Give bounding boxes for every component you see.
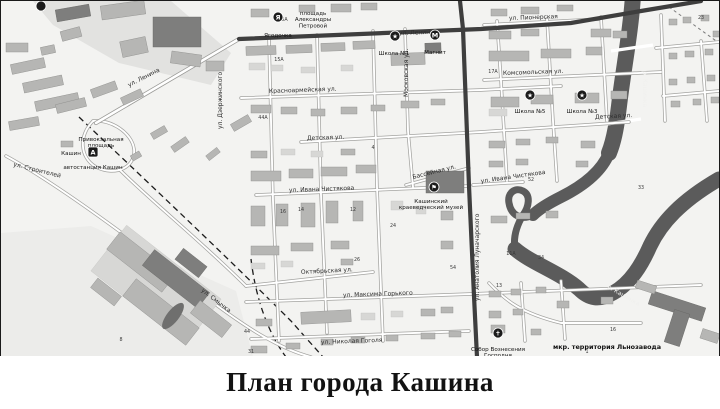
building xyxy=(491,97,519,107)
house-number: 44 xyxy=(244,329,250,335)
building xyxy=(576,161,588,167)
building xyxy=(491,216,507,223)
building xyxy=(516,213,530,219)
building xyxy=(557,5,573,11)
building xyxy=(669,53,677,59)
building xyxy=(251,151,267,158)
map-title: План города Кашина xyxy=(226,367,494,398)
building xyxy=(251,171,281,181)
house-number: 16 xyxy=(280,209,286,215)
building xyxy=(611,91,627,99)
school-1-icon[interactable]: ★ xyxy=(390,31,400,41)
house-number: 14 xyxy=(298,207,304,213)
building xyxy=(664,309,690,346)
building xyxy=(206,147,221,160)
school-5-icon[interactable]: ★ xyxy=(525,90,535,100)
building xyxy=(521,29,539,36)
building xyxy=(321,43,345,52)
river-kashinka-upper xyxy=(609,1,633,153)
building xyxy=(516,139,530,145)
building xyxy=(431,99,445,105)
house-number: 26 xyxy=(354,257,360,263)
place-label: Школа №5 xyxy=(515,109,546,115)
building xyxy=(341,65,353,71)
place-label: краеведческий музей xyxy=(399,204,464,211)
shop-yagodochka-glyph: Я xyxy=(275,13,280,21)
city-map-canvas[interactable]: ул. Ленинаул. Ленинаул. ПионерскаяКрасно… xyxy=(0,0,720,358)
building xyxy=(246,45,276,55)
building xyxy=(341,107,357,114)
house-number: 8 xyxy=(119,337,122,343)
school-5-glyph: ★ xyxy=(527,91,533,99)
house-number: 17А xyxy=(488,69,498,75)
house-number: 44А xyxy=(258,115,268,121)
building xyxy=(356,165,376,173)
river-kashinka-lower xyxy=(515,179,719,298)
building xyxy=(171,136,190,152)
museum-icon[interactable]: ⚑ xyxy=(429,182,439,192)
building xyxy=(249,63,265,70)
building xyxy=(601,297,613,304)
house-number: 11А xyxy=(506,251,516,257)
house-number: 52 xyxy=(528,177,534,183)
school-1-glyph: ★ xyxy=(392,32,398,40)
building xyxy=(61,141,73,147)
building xyxy=(150,125,167,139)
building xyxy=(441,241,453,249)
building xyxy=(230,115,251,132)
building xyxy=(311,151,323,157)
place-label: Петровой xyxy=(299,22,328,29)
building xyxy=(286,343,300,349)
building xyxy=(22,75,63,93)
building xyxy=(271,65,283,71)
building xyxy=(671,101,680,107)
building xyxy=(8,116,39,130)
school-3-glyph: ★ xyxy=(579,91,585,99)
street-label: ул. Дзержинского xyxy=(217,71,224,129)
building xyxy=(669,19,677,25)
bus-station-icon[interactable]: А xyxy=(88,147,98,157)
street-label: ул. Ленина xyxy=(399,29,434,37)
building xyxy=(489,291,501,297)
house-number: 4 xyxy=(371,145,374,151)
building xyxy=(281,107,297,114)
street-label: ул. Анатолия Луначарского xyxy=(474,213,481,301)
screenshot-frame: ул. Ленинаул. Ленинаул. ПионерскаяКрасно… xyxy=(0,0,720,409)
building xyxy=(421,333,435,339)
house-number: 33 xyxy=(638,185,644,191)
shop-magnit-icon[interactable]: М xyxy=(430,30,440,40)
place-label: Кашинский xyxy=(414,198,448,205)
building xyxy=(289,169,313,178)
building xyxy=(361,3,377,10)
building xyxy=(386,335,398,341)
building xyxy=(683,17,691,23)
church-icon[interactable]: ✝ xyxy=(493,328,503,338)
building xyxy=(693,99,701,105)
building xyxy=(153,17,201,47)
house-number: 54 xyxy=(450,265,456,271)
building xyxy=(286,45,312,54)
building xyxy=(301,310,352,325)
river-kashinka-mid xyxy=(533,153,609,215)
map-svg[interactable]: ул. Ленинаул. Ленинаул. ПионерскаяКрасно… xyxy=(1,1,719,357)
building xyxy=(6,43,28,52)
building xyxy=(546,137,558,143)
building xyxy=(531,329,541,335)
building xyxy=(546,211,558,218)
place-label: мкр. территория Льнозавода xyxy=(553,343,661,351)
building xyxy=(711,97,719,103)
building xyxy=(371,105,385,111)
building xyxy=(321,167,347,176)
river-label: р. Кашинка xyxy=(641,71,648,107)
building xyxy=(613,31,627,38)
building xyxy=(353,41,375,50)
building xyxy=(311,109,325,116)
building xyxy=(301,67,315,73)
building xyxy=(256,319,272,326)
building xyxy=(586,47,602,55)
shop-magnit-glyph: М xyxy=(432,31,438,39)
place-label: Ягодочка xyxy=(264,33,292,39)
building xyxy=(281,261,293,267)
house-number: 13 xyxy=(496,283,502,289)
building xyxy=(291,243,313,251)
place-label: Кашин xyxy=(61,151,81,157)
building xyxy=(669,79,677,85)
house-number: 23 xyxy=(698,15,704,21)
building xyxy=(281,149,295,155)
building xyxy=(491,9,507,16)
building xyxy=(361,313,375,320)
building xyxy=(251,105,271,113)
house-number: 1 xyxy=(585,349,588,355)
school-3-icon[interactable]: ★ xyxy=(577,90,587,100)
building xyxy=(511,289,521,295)
building xyxy=(441,307,453,313)
building xyxy=(591,29,611,37)
building xyxy=(521,7,539,14)
building xyxy=(251,246,279,255)
shop-yagodochka-icon[interactable]: Я xyxy=(273,12,283,22)
building xyxy=(326,201,338,223)
building xyxy=(331,4,351,12)
building xyxy=(449,331,461,337)
building xyxy=(489,311,501,318)
building xyxy=(489,161,503,167)
transit-stop-icon[interactable] xyxy=(36,1,46,11)
transit-stop-marker[interactable] xyxy=(36,1,46,11)
place-label: площадь xyxy=(300,11,327,17)
building xyxy=(713,31,719,37)
railway-branch xyxy=(251,259,286,357)
building xyxy=(401,101,419,108)
place-label: Александры xyxy=(295,17,331,23)
building xyxy=(705,49,713,55)
building xyxy=(421,309,435,316)
building xyxy=(536,287,546,293)
house-number: 24 xyxy=(390,223,396,229)
building xyxy=(341,259,353,265)
place-label: автостанция Кашин xyxy=(63,165,123,171)
building xyxy=(331,241,349,249)
building xyxy=(251,9,269,17)
building xyxy=(391,311,403,317)
street-label: ул. Строителей xyxy=(13,161,62,180)
building xyxy=(90,81,118,98)
church-glyph: ✝ xyxy=(495,329,500,337)
building xyxy=(276,204,288,226)
building xyxy=(206,61,224,71)
place-label: Собор Вознесения xyxy=(471,347,525,353)
museum-glyph: ⚑ xyxy=(431,183,437,191)
building xyxy=(513,309,523,315)
building xyxy=(707,75,715,81)
building xyxy=(635,280,656,294)
house-number: 12 xyxy=(350,207,356,213)
house-number: 15А xyxy=(274,57,284,63)
building xyxy=(541,49,571,58)
building xyxy=(489,31,511,39)
house-number: 16 xyxy=(610,327,616,333)
building xyxy=(489,141,505,148)
place-label: Школа №1 xyxy=(379,51,410,57)
building xyxy=(40,45,55,56)
building xyxy=(441,211,453,220)
street-label: ул. Николая Гоголя xyxy=(321,337,383,346)
house-number: 31 xyxy=(248,349,254,355)
building xyxy=(341,149,355,155)
building xyxy=(516,159,528,165)
place-label: Школа №3 xyxy=(567,109,598,115)
building xyxy=(489,109,507,116)
building xyxy=(557,301,569,308)
building xyxy=(489,51,529,61)
building xyxy=(251,206,265,226)
building xyxy=(581,141,595,148)
place-label: Магнит xyxy=(424,50,446,56)
street-label: Детская ул. xyxy=(307,134,345,142)
house-number: 34 xyxy=(538,255,544,261)
river-kashinka-hook xyxy=(509,190,533,249)
title-bar: План города Кашина xyxy=(0,356,720,409)
building xyxy=(10,58,45,75)
place-label: Привокзальная xyxy=(78,137,123,143)
building xyxy=(685,51,694,57)
bus-station-glyph: А xyxy=(90,148,95,156)
building xyxy=(251,263,265,269)
building xyxy=(687,77,695,83)
building xyxy=(700,328,719,343)
building xyxy=(301,203,315,227)
